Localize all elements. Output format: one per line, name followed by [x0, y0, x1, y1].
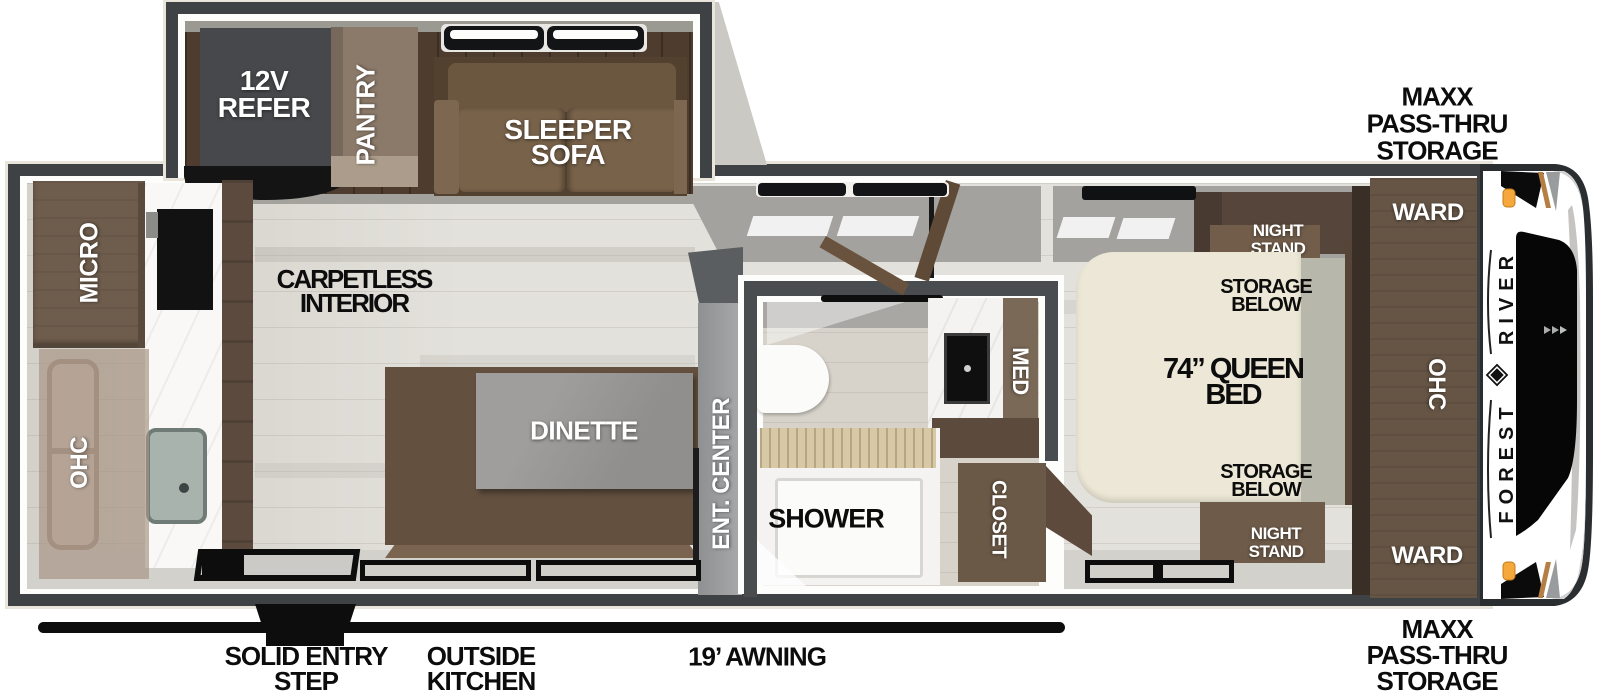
- svg-text:RIVER: RIVER: [1496, 249, 1518, 345]
- svg-text:FOREST: FOREST: [1496, 400, 1518, 523]
